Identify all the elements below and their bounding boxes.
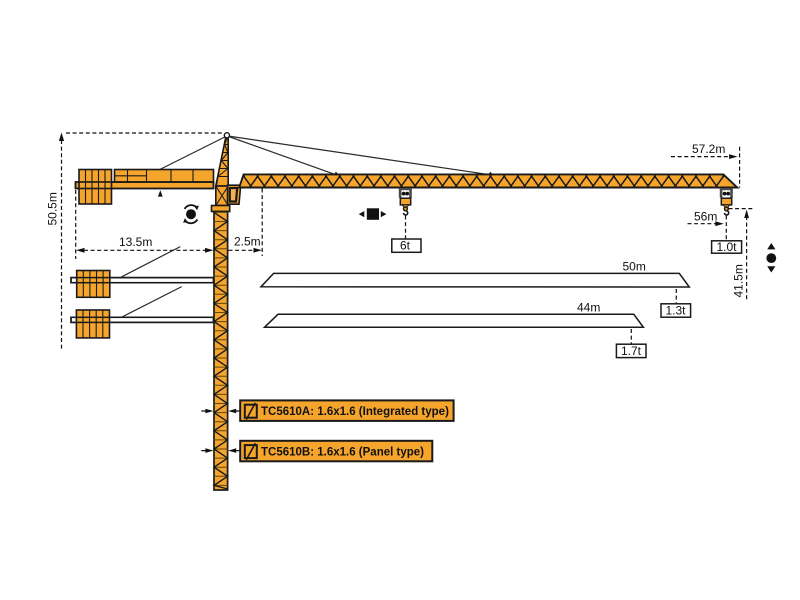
svg-text:50m: 50m (623, 260, 646, 274)
svg-text:44m: 44m (577, 301, 600, 315)
svg-text:56m: 56m (694, 210, 717, 224)
svg-text:57.2m: 57.2m (692, 142, 725, 156)
svg-text:41.5m: 41.5m (732, 264, 746, 297)
svg-text:1.3t: 1.3t (666, 303, 687, 317)
svg-text:1.0t: 1.0t (717, 240, 738, 254)
svg-text:6t: 6t (400, 239, 411, 253)
svg-text:TC5610A: 1.6x1.6 (Integrated: TC5610A: 1.6x1.6 (Integrated type) (261, 406, 449, 418)
svg-text:2.5m: 2.5m (234, 235, 261, 249)
svg-text:13.5m: 13.5m (119, 235, 152, 249)
svg-text:50.5m: 50.5m (46, 192, 60, 225)
svg-text:TC5610B: 1.6x1.6 (Panel type: TC5610B: 1.6x1.6 (Panel type) (261, 446, 424, 458)
svg-text:1.7t: 1.7t (621, 344, 642, 358)
